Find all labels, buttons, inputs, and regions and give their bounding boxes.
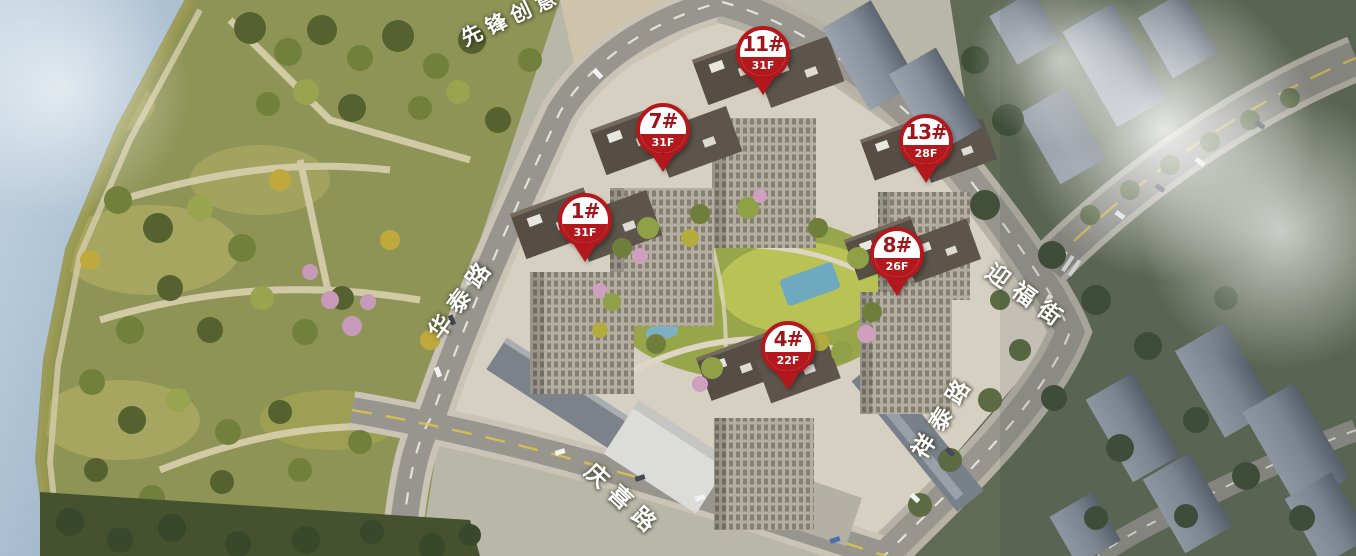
marker-balloon: 13# 28F bbox=[899, 114, 953, 168]
marker-number: 1# bbox=[562, 200, 608, 222]
marker-number: 7# bbox=[640, 110, 686, 132]
masterplan-canvas: 先锋创意 华泰路 庆喜路 祥泰路 迎福街 1# 31F 4# 22F 7# 31… bbox=[0, 0, 1356, 556]
marker-tail bbox=[752, 78, 774, 95]
building-marker-4[interactable]: 4# 22F bbox=[759, 321, 817, 390]
marker-number: 11# bbox=[740, 33, 786, 55]
marker-balloon: 7# 31F bbox=[636, 103, 690, 157]
marker-number: 4# bbox=[765, 328, 811, 350]
haze bbox=[970, 0, 1356, 556]
marker-balloon: 4# 22F bbox=[761, 321, 815, 375]
marker-floors: 28F bbox=[903, 145, 949, 164]
marker-number: 8# bbox=[874, 234, 920, 256]
marker-tail bbox=[574, 245, 596, 262]
marker-floors: 26F bbox=[874, 258, 920, 277]
marker-tail bbox=[777, 373, 799, 390]
marker-balloon: 11# 31F bbox=[736, 26, 790, 80]
building-marker-7[interactable]: 7# 31F bbox=[634, 103, 692, 172]
marker-floors: 31F bbox=[640, 134, 686, 153]
marker-tail bbox=[886, 279, 908, 296]
marker-tail bbox=[915, 166, 937, 183]
marker-floors: 22F bbox=[765, 352, 811, 371]
marker-number: 13# bbox=[903, 121, 949, 143]
building-marker-1[interactable]: 1# 31F bbox=[556, 193, 614, 262]
marker-floors: 31F bbox=[740, 57, 786, 76]
marker-balloon: 1# 31F bbox=[558, 193, 612, 247]
marker-balloon: 8# 26F bbox=[870, 227, 924, 281]
site-plan-art bbox=[0, 0, 1356, 556]
building-marker-13[interactable]: 13# 28F bbox=[897, 114, 955, 183]
marker-tail bbox=[652, 155, 674, 172]
building-marker-11[interactable]: 11# 31F bbox=[734, 26, 792, 95]
marker-floors: 31F bbox=[562, 224, 608, 243]
building-marker-8[interactable]: 8# 26F bbox=[868, 227, 926, 296]
